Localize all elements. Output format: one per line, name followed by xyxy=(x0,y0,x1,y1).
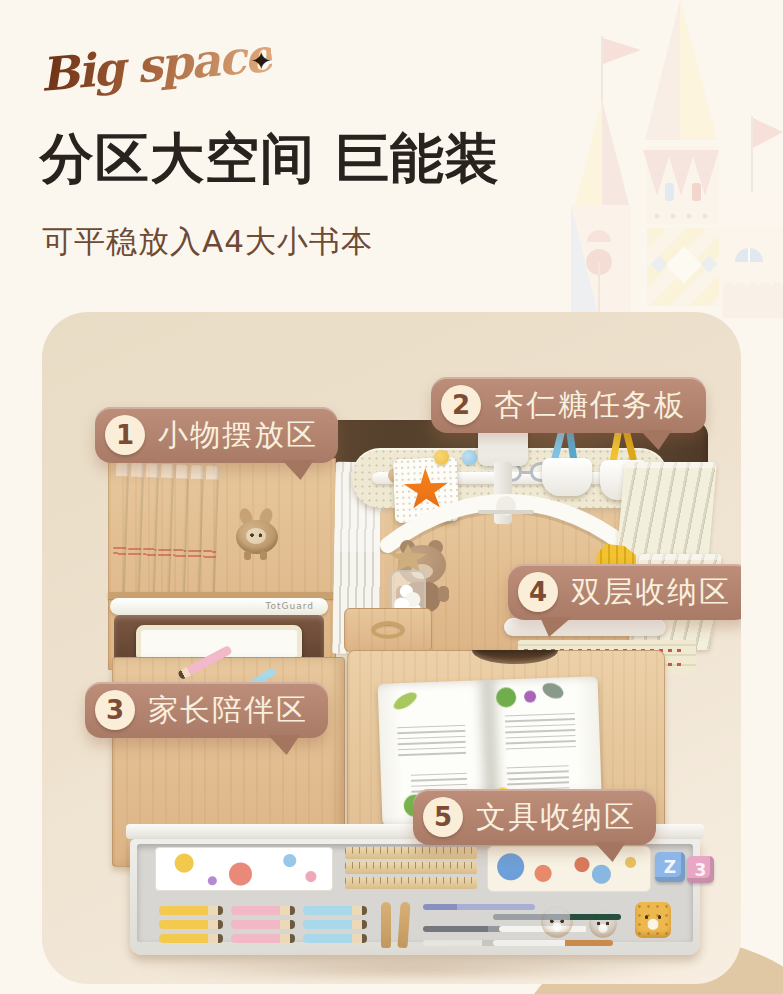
callout-number: 2 xyxy=(441,385,481,425)
product-card: TotGuard xyxy=(42,312,741,984)
text-block xyxy=(505,713,576,749)
wooden-utensil xyxy=(381,902,391,948)
callout-label: 双层收纳区 xyxy=(571,572,731,613)
pencil xyxy=(231,906,295,915)
pencil xyxy=(231,934,295,943)
drop-shadow xyxy=(132,958,692,980)
bunny-leg xyxy=(260,551,267,560)
pencil-group-yellow xyxy=(159,904,225,950)
pencil-group-blue xyxy=(303,904,369,950)
pencil xyxy=(303,934,367,943)
sticker-sheet-planets xyxy=(155,847,333,891)
callout-label: 家长陪伴区 xyxy=(148,690,308,731)
wooden-utensil xyxy=(397,902,410,949)
ruler xyxy=(345,877,477,889)
page-subtitle: 可平稳放入A4大小书本 xyxy=(42,221,373,263)
pencil xyxy=(159,920,223,929)
castle-illustration xyxy=(555,0,783,340)
pencil xyxy=(303,920,367,929)
callout-label: 文具收纳区 xyxy=(476,797,636,838)
callout-4: 4 双层收纳区 xyxy=(508,564,741,620)
tray-brand: TotGuard xyxy=(266,601,314,611)
callout-number: 5 xyxy=(423,797,463,837)
glasses-bridge xyxy=(522,471,530,474)
biscuit-eraser xyxy=(635,902,671,938)
ruler-stack xyxy=(345,847,477,891)
callout-label: 小物摆放区 xyxy=(158,415,318,456)
callout-2: 2 杏仁糖任务板 xyxy=(431,377,706,433)
callout-label: 杏仁糖任务板 xyxy=(494,385,686,426)
pencil-group-pink xyxy=(231,904,297,950)
pen xyxy=(423,904,535,910)
callout-3: 3 家长陪伴区 xyxy=(85,682,328,738)
text-block xyxy=(397,725,466,757)
callout-number: 3 xyxy=(95,690,135,730)
cookie-eraser xyxy=(541,906,573,938)
pen xyxy=(493,940,613,946)
cookie-eraser xyxy=(589,910,617,938)
magnet-yellow xyxy=(434,450,449,465)
pencil xyxy=(231,920,295,929)
sticker-sheet-space xyxy=(487,846,651,892)
ruler xyxy=(345,847,477,859)
magnet-blue xyxy=(462,450,477,465)
brand-logo: Big space ✦ xyxy=(40,38,300,118)
sharpener-handle xyxy=(371,621,405,639)
letter-block-z: Z xyxy=(655,852,685,882)
double-layer-shelf xyxy=(504,618,666,636)
promo-page: Big space ✦ 分区大空间 巨能装 可平稳放入A4大小书本 TotGua… xyxy=(0,0,783,994)
pencil xyxy=(159,934,223,943)
callout-1: 1 小物摆放区 xyxy=(95,407,338,463)
pencil xyxy=(159,906,223,915)
sharpener-box xyxy=(344,608,432,652)
book xyxy=(202,465,220,597)
letter-block-3: 3 xyxy=(687,856,714,883)
bunny-leg xyxy=(244,551,251,560)
bear-paw xyxy=(438,586,449,602)
callout-number: 1 xyxy=(105,415,145,455)
callout-5: 5 文具收纳区 xyxy=(413,789,656,845)
logo-text: Big space xyxy=(38,28,274,102)
page-title: 分区大空间 巨能装 xyxy=(40,124,500,194)
ruler xyxy=(345,862,477,874)
sparkle-icon: ✦ xyxy=(250,46,272,76)
bunny-clock-face xyxy=(246,528,266,544)
callout-number: 4 xyxy=(518,572,558,612)
bunny-clock xyxy=(234,510,280,560)
pencil xyxy=(303,906,367,915)
book-stack xyxy=(112,462,235,598)
